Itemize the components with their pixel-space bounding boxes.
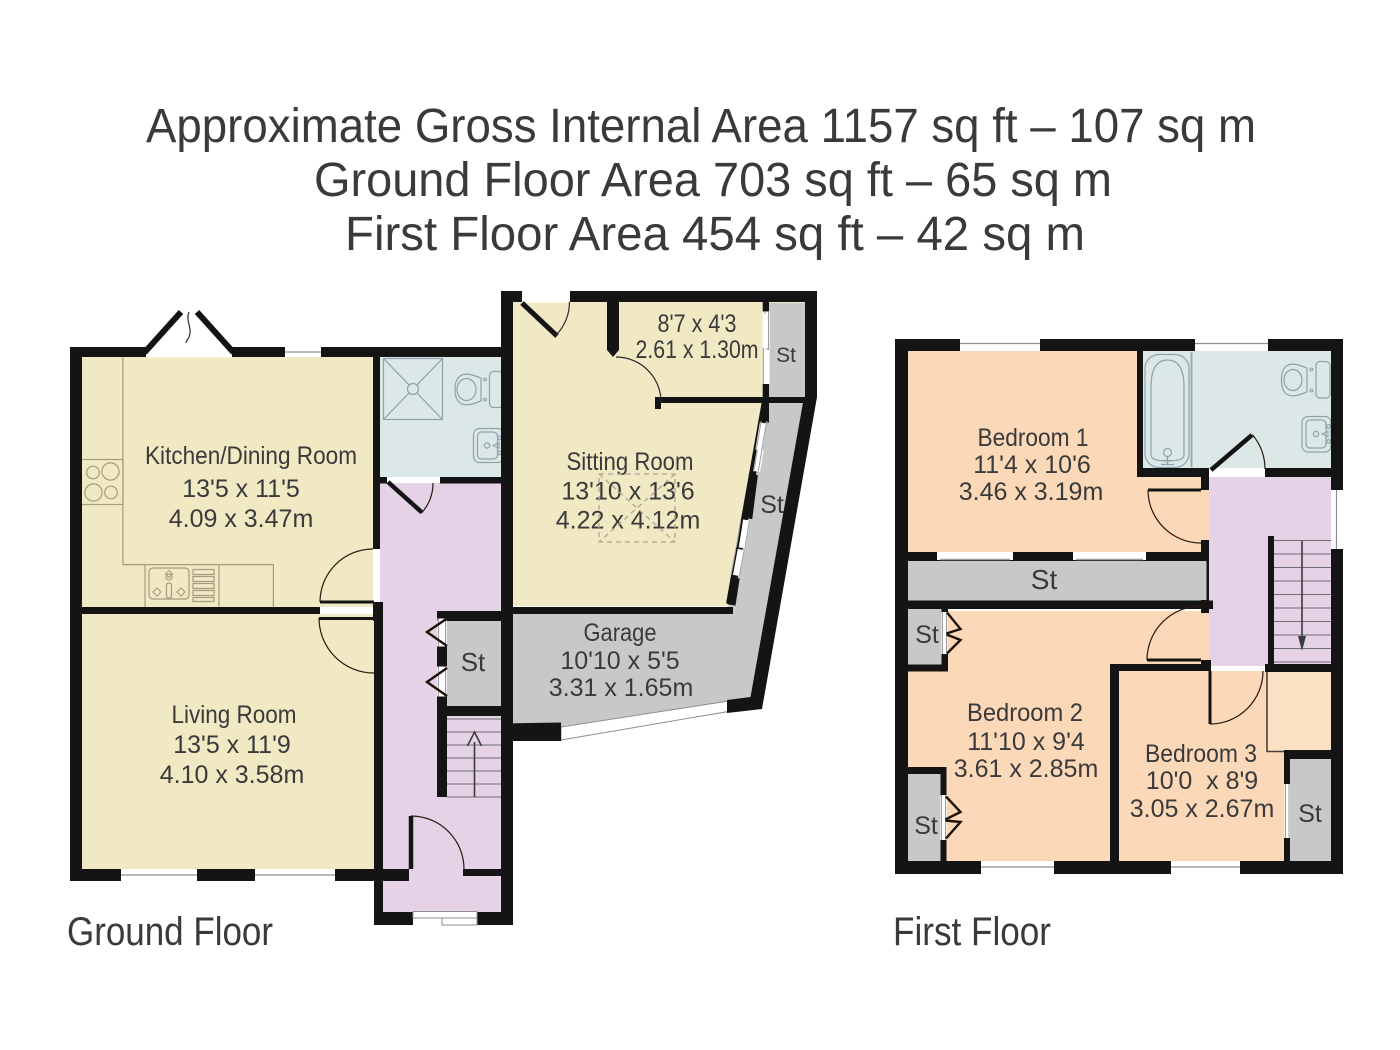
svg-text:10'0 x 8'9: 10'0 x 8'9: [1146, 767, 1258, 795]
svg-text:Bedroom 3: Bedroom 3: [1145, 740, 1257, 768]
svg-text:St: St: [461, 647, 486, 677]
svg-text:11'10 x 9'4: 11'10 x 9'4: [967, 728, 1085, 756]
svg-text:8'7 x 4'3: 8'7 x 4'3: [658, 310, 737, 338]
svg-text:4.10 x 3.58m: 4.10 x 3.58m: [160, 761, 305, 789]
svg-text:10'10 x 5'5: 10'10 x 5'5: [560, 647, 679, 675]
svg-text:3.05 x 2.67m: 3.05 x 2.67m: [1130, 795, 1275, 823]
svg-text:Bedroom 2: Bedroom 2: [967, 699, 1083, 727]
svg-text:Bedroom 1: Bedroom 1: [978, 424, 1089, 452]
svg-text:Sitting Room: Sitting Room: [567, 448, 694, 476]
svg-text:13'5 x 11'5: 13'5 x 11'5: [182, 475, 300, 503]
svg-text:2.61 x 1.30m: 2.61 x 1.30m: [636, 336, 759, 364]
svg-text:St: St: [1031, 564, 1058, 595]
svg-text:St: St: [1298, 800, 1322, 828]
svg-text:Approximate Gross Internal Are: Approximate Gross Internal Area 1157 sq …: [146, 100, 1256, 153]
svg-text:Ground Floor Area 703 sq ft –: Ground Floor Area 703 sq ft – 65 sq m: [314, 154, 1112, 207]
svg-text:Kitchen/Dining Room: Kitchen/Dining Room: [145, 442, 357, 470]
svg-text:St: St: [760, 491, 784, 519]
svg-text:4.09 x 3.47m: 4.09 x 3.47m: [169, 505, 314, 533]
svg-text:First Floor: First Floor: [893, 910, 1051, 954]
svg-text:4.22 x 4.12m: 4.22 x 4.12m: [556, 507, 701, 535]
svg-text:First Floor Area 454 sq ft – 4: First Floor Area 454 sq ft – 42 sq m: [345, 208, 1085, 261]
svg-text:Ground Floor: Ground Floor: [67, 910, 273, 954]
svg-text:13'5 x 11'9: 13'5 x 11'9: [173, 731, 291, 759]
svg-text:Living Room: Living Room: [172, 701, 297, 729]
svg-text:3.46 x 3.19m: 3.46 x 3.19m: [959, 478, 1104, 506]
svg-text:3.61 x 2.85m: 3.61 x 2.85m: [954, 755, 1099, 783]
svg-text:St: St: [776, 344, 796, 367]
svg-text:Garage: Garage: [584, 619, 657, 647]
svg-text:St: St: [914, 812, 938, 840]
svg-text:St: St: [915, 621, 939, 649]
svg-text:11'4 x 10'6: 11'4 x 10'6: [973, 451, 1091, 479]
svg-text:3.31 x 1.65m: 3.31 x 1.65m: [549, 674, 694, 702]
